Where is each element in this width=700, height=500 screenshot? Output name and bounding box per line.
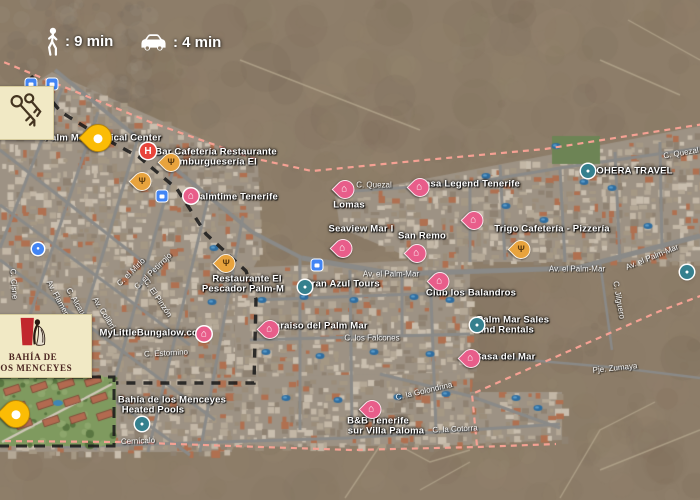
keys-icon xyxy=(5,91,49,135)
store-marker-icon[interactable]: ● xyxy=(32,243,44,255)
driving-time-badge: : 4 min xyxy=(138,32,221,53)
restaurant-pin-icon[interactable]: Ψ xyxy=(133,172,152,191)
poi-label[interactable]: MyLittleBungalow.com xyxy=(99,328,206,339)
poi-label[interactable]: BOHERA TRAVEL xyxy=(589,166,672,177)
walking-time-badge: : 9 min xyxy=(44,26,113,57)
poi-label[interactable]: Casa del Mar xyxy=(474,352,535,363)
restaurant-pin-icon[interactable]: Ψ xyxy=(162,153,181,172)
bus-stop-icon[interactable] xyxy=(312,260,323,271)
lodging-pin-icon[interactable]: ⌂ xyxy=(465,211,484,230)
poi-label[interactable]: Seaview Mar I xyxy=(329,224,394,235)
bahia-menceyes-logo xyxy=(13,317,53,347)
business-marker-icon[interactable]: ● xyxy=(680,265,694,279)
lodging-pin-icon[interactable]: ⌂ xyxy=(408,244,427,263)
poi-label[interactable]: Lomas xyxy=(333,200,365,211)
bahia-logo-line2: LOS MENCEYES xyxy=(0,363,91,374)
lodging-pin-icon[interactable]: ⌂ xyxy=(363,400,382,419)
hospital-marker-icon[interactable]: H xyxy=(140,143,156,159)
lodging-marker-icon[interactable]: ⌂ xyxy=(197,327,212,342)
walking-time-label: : 9 min xyxy=(65,33,113,50)
lodging-pin-icon[interactable]: ⌂ xyxy=(336,180,355,199)
street-label: C. Quezal xyxy=(356,181,392,190)
bahia-logo-line1: BAHÍA DE xyxy=(0,352,91,363)
business-marker-icon[interactable]: ● xyxy=(470,318,484,332)
restaurant-pin-icon[interactable]: Ψ xyxy=(217,254,236,273)
walking-person-icon xyxy=(44,26,61,57)
street-label: Av. el Palm-Mar xyxy=(363,270,419,279)
poi-label[interactable]: Paraiso del Palm Mar xyxy=(268,321,368,332)
bahia-menceyes-logo-card: BAHÍA DE LOS MENCEYES xyxy=(0,314,92,378)
lodging-pin-icon[interactable]: ⌂ xyxy=(462,349,481,368)
lodging-pin-icon[interactable]: ⌂ xyxy=(261,320,280,339)
poi-label[interactable]: Trigo Cafetería - Pizzería xyxy=(494,224,610,235)
agency-keys-logo-card xyxy=(0,86,54,140)
street-label: C. los Falcones xyxy=(344,334,399,343)
poi-label[interactable]: palmtime Tenerife xyxy=(194,192,278,203)
street-label: Av. el Palm-Mar xyxy=(549,265,605,274)
car-icon xyxy=(138,32,169,53)
business-marker-icon[interactable]: ● xyxy=(298,280,312,294)
satellite-map[interactable]: Palm Mar Medical CenterBar Cafetería Res… xyxy=(0,0,700,500)
gold-place-pin-icon[interactable] xyxy=(2,400,30,428)
business-marker-icon[interactable]: ● xyxy=(135,417,149,431)
restaurant-pin-icon[interactable]: Ψ xyxy=(512,240,531,259)
gold-place-pin-icon[interactable] xyxy=(84,124,112,152)
poi-label[interactable]: Casa Legend Tenerife xyxy=(418,179,520,190)
lodging-pin-icon[interactable]: ⌂ xyxy=(411,178,430,197)
poi-label[interactable]: Gran Azul Tours xyxy=(304,279,380,290)
street-label: Cernícalo xyxy=(121,436,156,446)
poi-label[interactable]: and Rentals xyxy=(478,325,534,336)
lodging-marker-icon[interactable]: ⌂ xyxy=(184,189,199,204)
bus-stop-icon[interactable] xyxy=(157,191,168,202)
poi-label[interactable]: San Remo xyxy=(398,231,446,242)
driving-time-label: : 4 min xyxy=(173,34,221,51)
poi-label[interactable]: Heated Pools xyxy=(122,405,185,416)
lodging-pin-icon[interactable]: ⌂ xyxy=(334,239,353,258)
poi-label[interactable]: Pescador Palm-M xyxy=(202,284,284,295)
poi-label[interactable]: sur Villa Paloma xyxy=(348,426,424,437)
business-marker-icon[interactable]: ● xyxy=(581,164,595,178)
lodging-pin-icon[interactable]: ⌂ xyxy=(431,272,450,291)
